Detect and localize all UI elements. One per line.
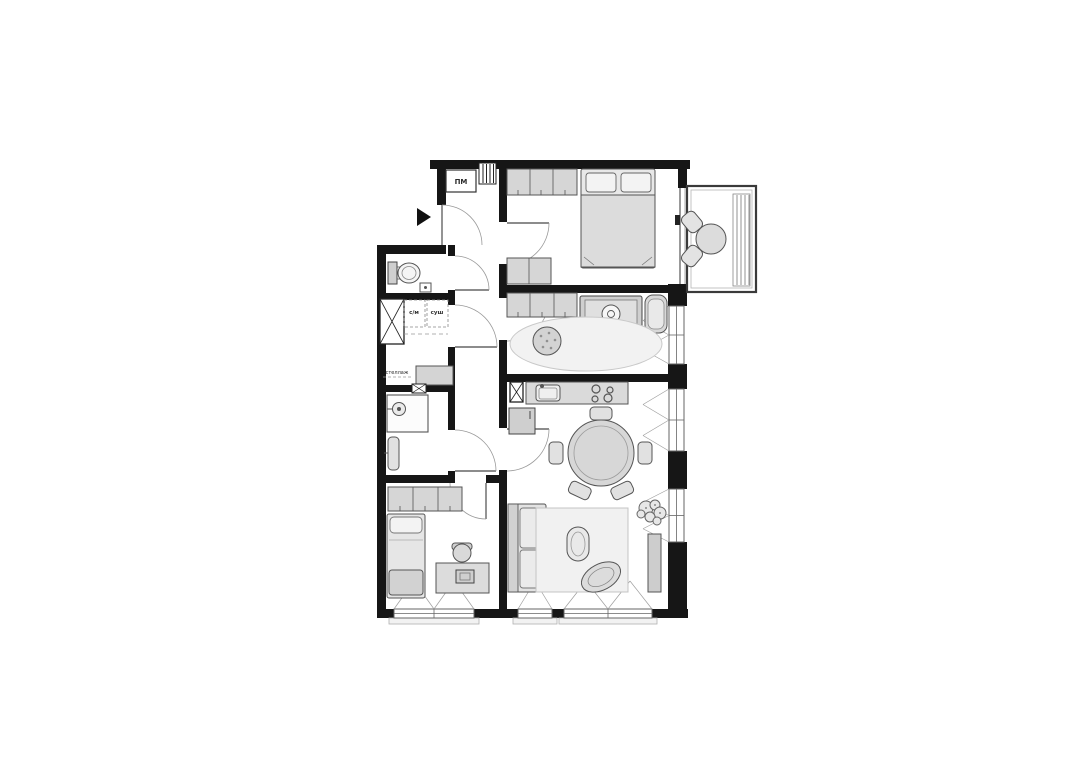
- wall-bottom-4: [652, 609, 688, 618]
- wall-bottom-2: [474, 609, 518, 618]
- wall-bottom-1: [377, 609, 394, 618]
- wall-wc-right-1: [448, 245, 455, 256]
- laundry-shaft: [380, 299, 404, 344]
- living-window-small-sill: [513, 618, 557, 624]
- wall-right-1: [668, 284, 687, 306]
- fridge: [509, 408, 535, 434]
- kids-window-sill: [389, 618, 479, 624]
- wall-bottom-3: [552, 609, 564, 618]
- bedroom-wardrobe: [507, 169, 577, 195]
- kitchen-shaft: [510, 382, 523, 402]
- bedroom-dresser: [507, 258, 551, 284]
- dining-chair-2: [549, 442, 563, 464]
- wall-nursery-living: [499, 374, 668, 382]
- floor-plan-svg: ПМс/мсушстеллаж: [0, 0, 1092, 772]
- kids-bed: [387, 514, 425, 598]
- dryer-label: суш: [431, 310, 444, 316]
- dining-table: [568, 420, 634, 486]
- wall-right-4: [668, 542, 687, 609]
- vent-grille: [479, 163, 496, 184]
- shelf-label: стеллаж: [386, 370, 409, 376]
- living-window-wide-sill: [559, 618, 657, 624]
- wall-corridor-4: [499, 470, 507, 483]
- dining-chair-3: [638, 442, 652, 464]
- wall-corridor-3: [499, 340, 507, 428]
- wall-kids-living: [499, 483, 507, 609]
- bath-vent: [412, 384, 426, 393]
- balcony-slats: [733, 194, 750, 286]
- dining-chair-1: [590, 407, 612, 420]
- nursery-wardrobe: [507, 293, 577, 317]
- wall-right-2: [668, 364, 687, 389]
- coffee-table: [567, 527, 589, 561]
- kids-chair: [452, 543, 472, 562]
- shower: [387, 395, 428, 432]
- wc-drain: [420, 283, 431, 292]
- wall-kids-top-1: [377, 475, 450, 483]
- wall-entry-left: [437, 160, 446, 205]
- kids-wardrobe: [388, 487, 462, 511]
- entry-closet-label: ПМ: [455, 178, 468, 186]
- wall-left-step: [377, 245, 446, 254]
- pouf: [533, 327, 561, 355]
- wall-bedroom-right: [678, 160, 687, 188]
- floor-plan-image: ПМс/мсушстеллаж: [0, 0, 1092, 772]
- wall-top: [430, 160, 690, 169]
- wall-corridor-1: [499, 160, 507, 222]
- kitchen-sink: [536, 384, 560, 401]
- washer-label: с/м: [409, 310, 419, 316]
- tv-console: [648, 534, 661, 592]
- wall-bedroom-nursery: [499, 285, 668, 293]
- toilet: [388, 262, 420, 284]
- wall-right-3: [668, 451, 687, 489]
- kids-desk: [436, 563, 489, 593]
- changing-pad: [645, 295, 667, 333]
- nursery-rug: [510, 317, 662, 371]
- laundry-cabinet: [416, 366, 453, 385]
- double-bed: [581, 169, 655, 268]
